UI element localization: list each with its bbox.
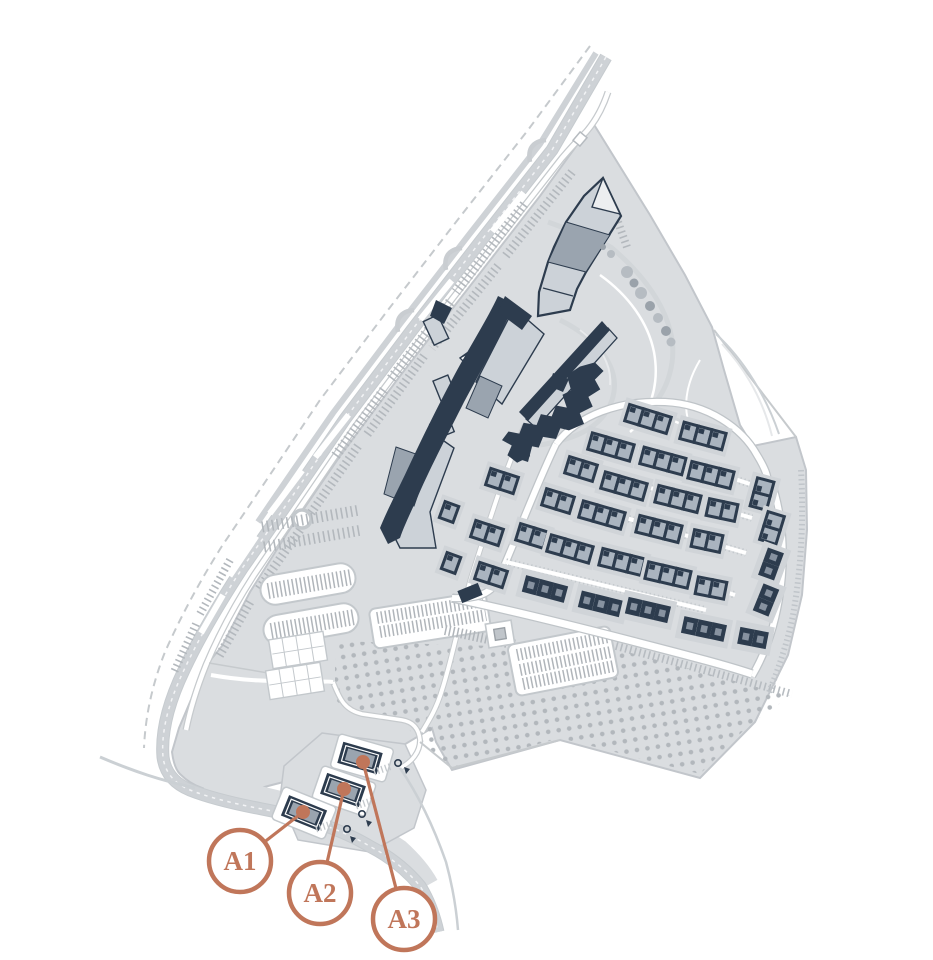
svg-text:A2: A2 xyxy=(304,878,337,908)
svg-text:A3: A3 xyxy=(388,904,421,934)
svg-text:A1: A1 xyxy=(224,846,257,876)
